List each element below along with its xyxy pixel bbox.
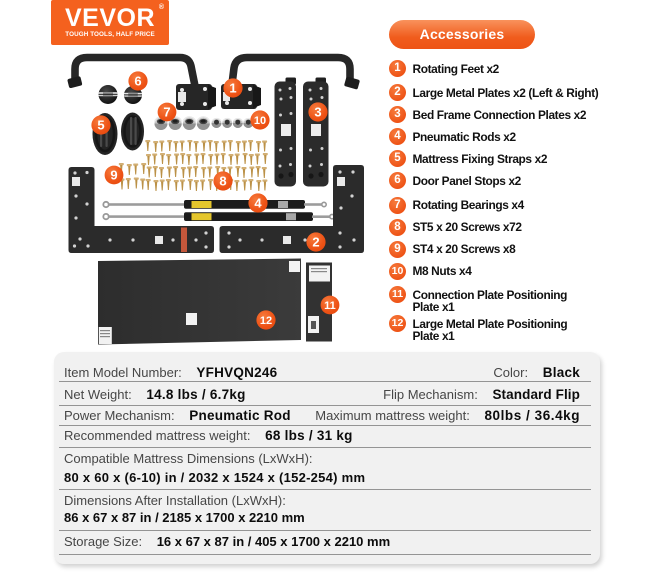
svg-text:12: 12 [260,315,272,327]
svg-text:4: 4 [254,196,262,211]
svg-text:3: 3 [314,105,321,120]
svg-text:8: 8 [219,174,226,189]
svg-text:5: 5 [97,118,104,133]
svg-text:6: 6 [134,74,141,89]
svg-text:7: 7 [163,105,170,120]
svg-text:10: 10 [254,115,266,127]
svg-text:9: 9 [110,168,117,183]
svg-text:2: 2 [312,235,319,250]
svg-text:1: 1 [229,81,236,96]
svg-text:11: 11 [324,300,336,312]
